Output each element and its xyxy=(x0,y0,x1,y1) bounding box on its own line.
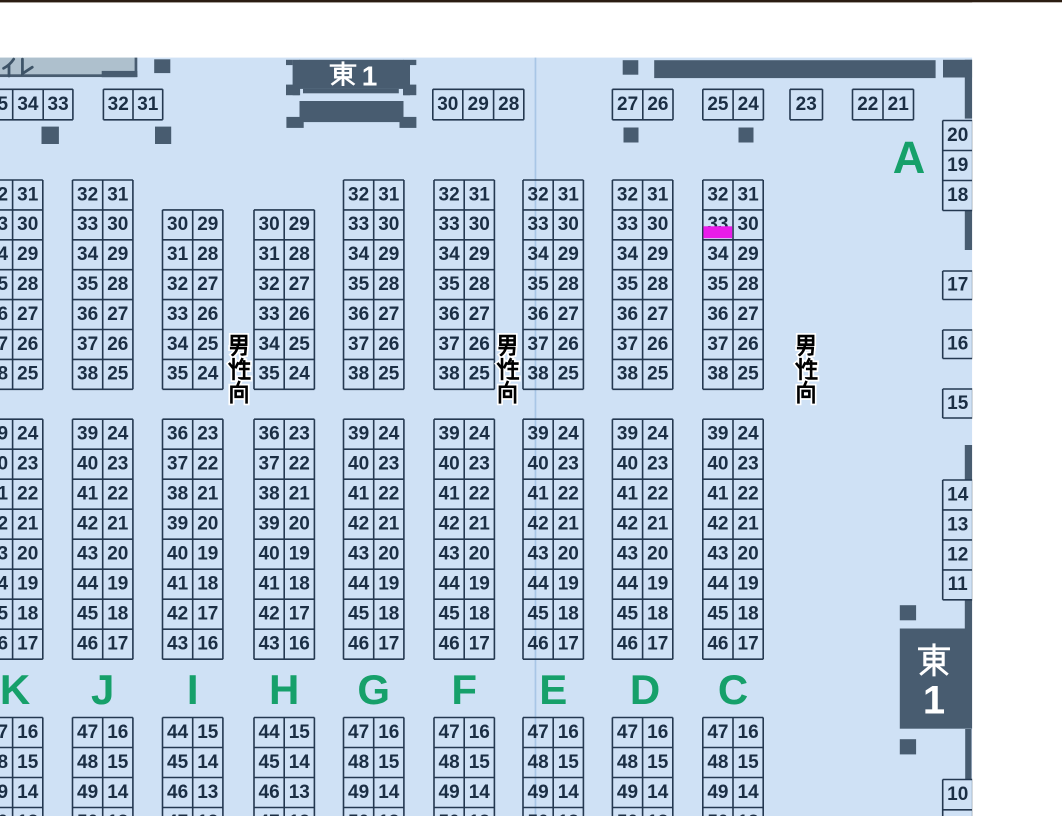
svg-text:42: 42 xyxy=(167,604,188,625)
svg-text:21: 21 xyxy=(107,514,129,535)
svg-text:41: 41 xyxy=(167,574,189,595)
svg-text:16: 16 xyxy=(197,634,218,655)
svg-text:19: 19 xyxy=(647,574,668,595)
svg-text:22: 22 xyxy=(469,484,490,505)
svg-text:27: 27 xyxy=(647,304,668,325)
svg-text:46: 46 xyxy=(348,634,369,655)
svg-text:20: 20 xyxy=(17,544,38,565)
svg-text:39: 39 xyxy=(77,424,98,445)
svg-text:25: 25 xyxy=(289,334,311,355)
svg-text:35: 35 xyxy=(167,364,189,385)
svg-text:29: 29 xyxy=(647,244,668,265)
svg-text:34: 34 xyxy=(348,244,370,265)
svg-text:39: 39 xyxy=(528,424,549,445)
svg-text:37: 37 xyxy=(259,454,280,475)
svg-text:19: 19 xyxy=(107,574,128,595)
svg-text:21: 21 xyxy=(289,484,311,505)
svg-text:46: 46 xyxy=(707,634,728,655)
svg-text:27: 27 xyxy=(558,304,579,325)
svg-text:25: 25 xyxy=(378,364,400,385)
svg-text:46: 46 xyxy=(617,634,638,655)
svg-text:15: 15 xyxy=(378,752,400,773)
svg-text:18: 18 xyxy=(469,604,490,625)
svg-text:21: 21 xyxy=(888,94,910,115)
svg-text:15: 15 xyxy=(107,752,129,773)
svg-text:41: 41 xyxy=(439,484,461,505)
svg-text:40: 40 xyxy=(707,454,728,475)
svg-text:19: 19 xyxy=(378,574,399,595)
svg-text:24: 24 xyxy=(738,94,760,115)
svg-text:29: 29 xyxy=(197,214,218,235)
svg-text:23: 23 xyxy=(378,454,399,475)
svg-text:28: 28 xyxy=(738,274,759,295)
svg-text:48: 48 xyxy=(348,752,369,773)
svg-text:30: 30 xyxy=(378,214,399,235)
svg-text:29: 29 xyxy=(468,94,489,115)
svg-text:42: 42 xyxy=(707,514,728,535)
svg-text:K: K xyxy=(0,666,30,713)
svg-text:25: 25 xyxy=(17,364,39,385)
svg-text:24: 24 xyxy=(378,424,400,445)
svg-text:32: 32 xyxy=(259,274,280,295)
svg-text:21: 21 xyxy=(647,514,669,535)
svg-text:25: 25 xyxy=(647,364,669,385)
svg-text:C: C xyxy=(718,666,748,713)
svg-text:13: 13 xyxy=(558,812,579,816)
svg-text:30: 30 xyxy=(437,94,458,115)
svg-text:44: 44 xyxy=(617,574,639,595)
svg-text:36: 36 xyxy=(528,304,549,325)
svg-text:47: 47 xyxy=(348,722,369,743)
svg-text:27: 27 xyxy=(107,304,128,325)
svg-text:40: 40 xyxy=(528,454,549,475)
svg-text:J: J xyxy=(91,666,114,713)
svg-text:16: 16 xyxy=(558,722,579,743)
svg-text:18: 18 xyxy=(378,604,399,625)
svg-text:37: 37 xyxy=(0,334,8,355)
svg-text:42: 42 xyxy=(259,604,280,625)
svg-text:25: 25 xyxy=(738,364,760,385)
svg-text:18: 18 xyxy=(647,604,668,625)
svg-text:18: 18 xyxy=(558,604,579,625)
svg-text:18: 18 xyxy=(197,574,218,595)
svg-text:36: 36 xyxy=(617,304,638,325)
svg-text:38: 38 xyxy=(259,484,280,505)
svg-text:34: 34 xyxy=(77,244,99,265)
svg-text:41: 41 xyxy=(77,484,99,505)
svg-text:13: 13 xyxy=(197,782,218,803)
svg-text:24: 24 xyxy=(197,364,219,385)
svg-text:25: 25 xyxy=(107,364,129,385)
svg-text:36: 36 xyxy=(167,424,188,445)
svg-text:17: 17 xyxy=(107,634,128,655)
svg-text:20: 20 xyxy=(647,544,668,565)
svg-text:28: 28 xyxy=(498,94,519,115)
svg-text:13: 13 xyxy=(289,782,310,803)
svg-text:32: 32 xyxy=(77,184,98,205)
svg-text:31: 31 xyxy=(137,94,159,115)
svg-text:24: 24 xyxy=(738,424,760,445)
svg-text:13: 13 xyxy=(17,812,38,816)
svg-text:28: 28 xyxy=(107,274,128,295)
svg-text:34: 34 xyxy=(167,334,189,355)
svg-text:19: 19 xyxy=(469,574,490,595)
svg-text:20: 20 xyxy=(947,125,968,146)
svg-text:20: 20 xyxy=(197,514,218,535)
svg-text:17: 17 xyxy=(647,634,668,655)
svg-text:28: 28 xyxy=(378,274,399,295)
svg-text:36: 36 xyxy=(77,304,98,325)
svg-text:33: 33 xyxy=(48,94,69,115)
svg-text:39: 39 xyxy=(439,424,460,445)
svg-text:28: 28 xyxy=(17,274,38,295)
svg-text:42: 42 xyxy=(0,514,8,535)
svg-text:13: 13 xyxy=(378,812,399,816)
svg-text:38: 38 xyxy=(0,364,8,385)
svg-text:33: 33 xyxy=(0,214,8,235)
svg-text:41: 41 xyxy=(348,484,370,505)
svg-text:20: 20 xyxy=(469,544,490,565)
svg-text:44: 44 xyxy=(0,574,8,595)
svg-text:50: 50 xyxy=(77,812,98,816)
svg-text:47: 47 xyxy=(617,722,638,743)
svg-text:19: 19 xyxy=(947,155,968,176)
svg-text:41: 41 xyxy=(707,484,729,505)
svg-text:17: 17 xyxy=(947,275,968,296)
svg-text:44: 44 xyxy=(348,574,370,595)
svg-text:28: 28 xyxy=(469,274,490,295)
svg-text:28: 28 xyxy=(197,244,218,265)
svg-text:50: 50 xyxy=(528,812,549,816)
svg-text:15: 15 xyxy=(738,752,760,773)
svg-text:21: 21 xyxy=(197,484,219,505)
svg-text:38: 38 xyxy=(528,364,549,385)
svg-text:49: 49 xyxy=(77,782,98,803)
svg-text:31: 31 xyxy=(378,184,400,205)
svg-text:16: 16 xyxy=(469,722,490,743)
svg-text:13: 13 xyxy=(738,812,759,816)
svg-text:15: 15 xyxy=(469,752,491,773)
svg-text:46: 46 xyxy=(77,634,98,655)
svg-text:13: 13 xyxy=(947,514,968,535)
svg-text:36: 36 xyxy=(707,304,728,325)
svg-text:23: 23 xyxy=(107,454,128,475)
svg-text:32: 32 xyxy=(439,184,460,205)
svg-text:37: 37 xyxy=(77,334,98,355)
svg-text:49: 49 xyxy=(528,782,549,803)
svg-text:45: 45 xyxy=(439,604,461,625)
svg-text:43: 43 xyxy=(348,544,369,565)
svg-text:37: 37 xyxy=(617,334,638,355)
svg-text:16: 16 xyxy=(107,722,128,743)
svg-text:23: 23 xyxy=(289,424,310,445)
svg-text:48: 48 xyxy=(77,752,98,773)
svg-text:31: 31 xyxy=(558,184,580,205)
svg-text:20: 20 xyxy=(378,544,399,565)
svg-text:22: 22 xyxy=(647,484,668,505)
svg-text:F: F xyxy=(451,666,477,713)
svg-text:17: 17 xyxy=(469,634,490,655)
svg-text:39: 39 xyxy=(0,424,8,445)
svg-text:49: 49 xyxy=(0,782,8,803)
svg-text:48: 48 xyxy=(617,752,638,773)
svg-text:19: 19 xyxy=(558,574,579,595)
svg-text:29: 29 xyxy=(17,244,38,265)
svg-text:26: 26 xyxy=(558,334,579,355)
svg-text:45: 45 xyxy=(348,604,370,625)
svg-text:23: 23 xyxy=(558,454,579,475)
svg-text:25: 25 xyxy=(707,94,729,115)
svg-text:33: 33 xyxy=(167,304,188,325)
svg-text:29: 29 xyxy=(378,244,399,265)
svg-text:26: 26 xyxy=(378,334,399,355)
svg-text:38: 38 xyxy=(617,364,638,385)
svg-text:43: 43 xyxy=(259,634,280,655)
svg-text:14: 14 xyxy=(378,782,400,803)
svg-text:43: 43 xyxy=(167,634,188,655)
svg-text:47: 47 xyxy=(528,722,549,743)
svg-text:21: 21 xyxy=(378,514,400,535)
svg-text:20: 20 xyxy=(738,544,759,565)
svg-text:33: 33 xyxy=(528,214,549,235)
svg-text:27: 27 xyxy=(197,274,218,295)
svg-text:45: 45 xyxy=(167,752,189,773)
svg-text:14: 14 xyxy=(107,782,129,803)
svg-text:14: 14 xyxy=(469,782,491,803)
svg-text:26: 26 xyxy=(289,304,310,325)
svg-text:43: 43 xyxy=(439,544,460,565)
svg-text:22: 22 xyxy=(197,454,218,475)
svg-text:30: 30 xyxy=(738,214,759,235)
svg-text:27: 27 xyxy=(289,274,310,295)
svg-text:33: 33 xyxy=(259,304,280,325)
svg-text:19: 19 xyxy=(17,574,38,595)
svg-text:E: E xyxy=(539,666,567,713)
svg-text:42: 42 xyxy=(77,514,98,535)
svg-text:41: 41 xyxy=(0,484,8,505)
svg-text:26: 26 xyxy=(647,334,668,355)
svg-text:48: 48 xyxy=(439,752,460,773)
svg-text:24: 24 xyxy=(558,424,580,445)
svg-text:31: 31 xyxy=(469,184,491,205)
svg-text:43: 43 xyxy=(0,544,8,565)
svg-text:37: 37 xyxy=(528,334,549,355)
svg-text:18: 18 xyxy=(947,185,968,206)
svg-text:40: 40 xyxy=(167,544,188,565)
svg-text:46: 46 xyxy=(528,634,549,655)
svg-text:27: 27 xyxy=(617,94,638,115)
svg-text:44: 44 xyxy=(707,574,729,595)
svg-text:40: 40 xyxy=(617,454,638,475)
svg-text:46: 46 xyxy=(167,782,188,803)
svg-text:34: 34 xyxy=(707,244,729,265)
svg-text:22: 22 xyxy=(378,484,399,505)
svg-text:37: 37 xyxy=(167,454,188,475)
svg-text:36: 36 xyxy=(348,304,369,325)
svg-text:42: 42 xyxy=(617,514,638,535)
svg-text:35: 35 xyxy=(617,274,639,295)
svg-text:19: 19 xyxy=(289,544,310,565)
svg-text:17: 17 xyxy=(738,634,759,655)
svg-text:24: 24 xyxy=(289,364,311,385)
svg-text:21: 21 xyxy=(469,514,491,535)
svg-text:20: 20 xyxy=(558,544,579,565)
svg-text:25: 25 xyxy=(469,364,491,385)
svg-text:28: 28 xyxy=(289,244,310,265)
svg-text:34: 34 xyxy=(617,244,639,265)
svg-text:49: 49 xyxy=(348,782,369,803)
svg-text:43: 43 xyxy=(77,544,98,565)
svg-text:23: 23 xyxy=(738,454,759,475)
svg-text:35: 35 xyxy=(0,274,8,295)
svg-text:48: 48 xyxy=(707,752,728,773)
svg-text:29: 29 xyxy=(738,244,759,265)
svg-text:30: 30 xyxy=(469,214,490,235)
svg-text:44: 44 xyxy=(167,722,189,743)
svg-text:40: 40 xyxy=(0,454,8,475)
svg-text:31: 31 xyxy=(647,184,669,205)
svg-text:23: 23 xyxy=(647,454,668,475)
svg-text:47: 47 xyxy=(167,812,188,816)
svg-text:48: 48 xyxy=(528,752,549,773)
svg-text:27: 27 xyxy=(378,304,399,325)
svg-text:33: 33 xyxy=(439,214,460,235)
svg-text:34: 34 xyxy=(439,244,461,265)
svg-text:22: 22 xyxy=(107,484,128,505)
svg-text:18: 18 xyxy=(17,604,38,625)
svg-text:47: 47 xyxy=(707,722,728,743)
svg-text:34: 34 xyxy=(259,334,281,355)
svg-text:D: D xyxy=(630,666,660,713)
svg-text:34: 34 xyxy=(0,244,8,265)
svg-text:43: 43 xyxy=(707,544,728,565)
svg-text:42: 42 xyxy=(439,514,460,535)
svg-text:34: 34 xyxy=(528,244,550,265)
svg-text:45: 45 xyxy=(528,604,550,625)
svg-text:40: 40 xyxy=(348,454,369,475)
svg-text:46: 46 xyxy=(0,634,8,655)
svg-text:27: 27 xyxy=(17,304,38,325)
svg-text:33: 33 xyxy=(77,214,98,235)
svg-text:38: 38 xyxy=(707,364,728,385)
svg-text:49: 49 xyxy=(707,782,728,803)
svg-text:41: 41 xyxy=(617,484,639,505)
svg-text:37: 37 xyxy=(439,334,460,355)
svg-text:30: 30 xyxy=(107,214,128,235)
svg-text:28: 28 xyxy=(558,274,579,295)
svg-text:10: 10 xyxy=(947,784,968,805)
svg-text:15: 15 xyxy=(558,752,580,773)
svg-text:50: 50 xyxy=(439,812,460,816)
svg-text:47: 47 xyxy=(439,722,460,743)
svg-text:14: 14 xyxy=(738,782,760,803)
svg-text:44: 44 xyxy=(259,722,281,743)
svg-text:39: 39 xyxy=(167,514,188,535)
svg-text:30: 30 xyxy=(167,214,188,235)
svg-text:18: 18 xyxy=(289,574,310,595)
svg-text:20: 20 xyxy=(107,544,128,565)
svg-text:31: 31 xyxy=(107,184,129,205)
svg-text:16: 16 xyxy=(17,722,38,743)
svg-text:16: 16 xyxy=(947,334,968,355)
svg-text:24: 24 xyxy=(647,424,669,445)
svg-text:46: 46 xyxy=(259,782,280,803)
svg-text:25: 25 xyxy=(558,364,580,385)
svg-text:41: 41 xyxy=(528,484,550,505)
svg-text:15: 15 xyxy=(647,752,669,773)
svg-text:28: 28 xyxy=(647,274,668,295)
svg-text:38: 38 xyxy=(167,484,188,505)
svg-text:A: A xyxy=(893,132,926,183)
svg-text:16: 16 xyxy=(647,722,668,743)
svg-text:40: 40 xyxy=(77,454,98,475)
svg-text:39: 39 xyxy=(348,424,369,445)
svg-text:32: 32 xyxy=(528,184,549,205)
svg-text:38: 38 xyxy=(348,364,369,385)
svg-text:35: 35 xyxy=(439,274,461,295)
svg-text:42: 42 xyxy=(348,514,369,535)
svg-text:45: 45 xyxy=(259,752,281,773)
svg-text:14: 14 xyxy=(647,782,669,803)
svg-text:21: 21 xyxy=(558,514,580,535)
svg-text:18: 18 xyxy=(107,604,128,625)
svg-text:22: 22 xyxy=(738,484,759,505)
svg-text:14: 14 xyxy=(17,782,39,803)
svg-text:38: 38 xyxy=(77,364,98,385)
svg-text:1: 1 xyxy=(362,60,378,91)
svg-text:45: 45 xyxy=(0,604,8,625)
svg-text:44: 44 xyxy=(77,574,99,595)
svg-text:50: 50 xyxy=(617,812,638,816)
svg-text:42: 42 xyxy=(528,514,549,535)
svg-text:26: 26 xyxy=(107,334,128,355)
svg-text:17: 17 xyxy=(197,604,218,625)
svg-text:I: I xyxy=(187,666,199,713)
svg-text:37: 37 xyxy=(348,334,369,355)
svg-text:14: 14 xyxy=(947,484,969,505)
svg-text:32: 32 xyxy=(0,184,8,205)
svg-text:47: 47 xyxy=(0,722,8,743)
svg-text:39: 39 xyxy=(617,424,638,445)
svg-text:27: 27 xyxy=(738,304,759,325)
svg-text:31: 31 xyxy=(17,184,39,205)
svg-text:19: 19 xyxy=(197,544,218,565)
svg-text:15: 15 xyxy=(197,722,219,743)
svg-text:16: 16 xyxy=(378,722,399,743)
svg-text:15: 15 xyxy=(947,393,969,414)
svg-text:49: 49 xyxy=(617,782,638,803)
svg-text:40: 40 xyxy=(259,544,280,565)
svg-text:32: 32 xyxy=(707,184,728,205)
svg-text:36: 36 xyxy=(259,424,280,445)
svg-text:32: 32 xyxy=(617,184,638,205)
svg-text:23: 23 xyxy=(796,94,817,115)
svg-text:29: 29 xyxy=(469,244,490,265)
svg-text:26: 26 xyxy=(738,334,759,355)
svg-text:50: 50 xyxy=(0,812,8,816)
svg-text:17: 17 xyxy=(17,634,38,655)
svg-text:41: 41 xyxy=(259,574,281,595)
svg-text:40: 40 xyxy=(439,454,460,475)
svg-text:47: 47 xyxy=(77,722,98,743)
svg-text:35: 35 xyxy=(348,274,370,295)
svg-text:24: 24 xyxy=(107,424,129,445)
svg-text:48: 48 xyxy=(0,752,8,773)
svg-text:24: 24 xyxy=(469,424,491,445)
svg-text:17: 17 xyxy=(558,634,579,655)
svg-text:16: 16 xyxy=(738,722,759,743)
svg-text:12: 12 xyxy=(289,812,310,816)
